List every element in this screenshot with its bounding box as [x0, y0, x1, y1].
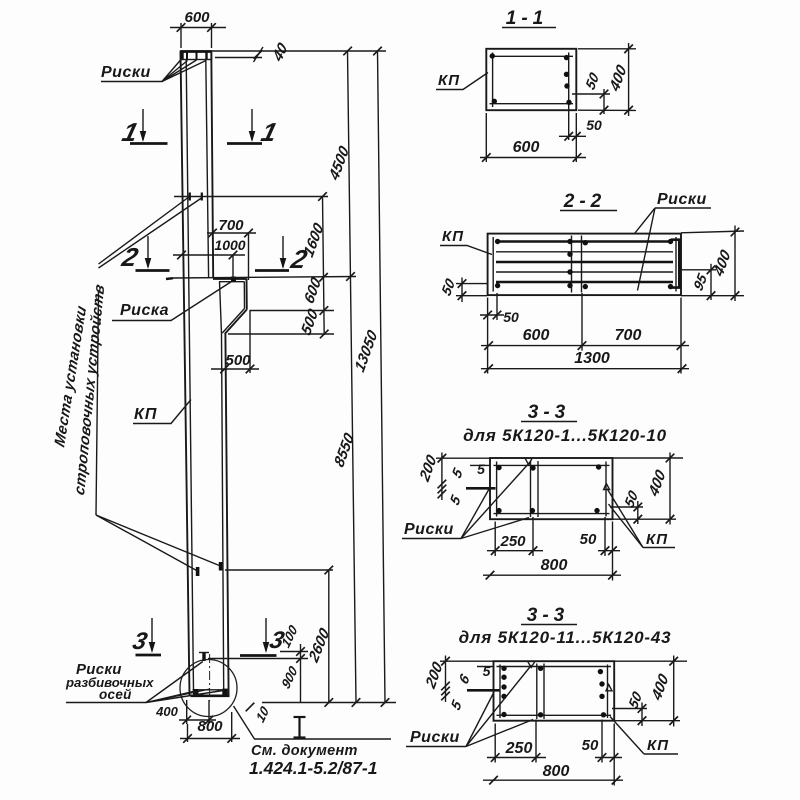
- svg-text:1300: 1300: [574, 350, 610, 367]
- svg-text:50: 50: [582, 737, 599, 754]
- svg-text:КП: КП: [134, 406, 157, 423]
- svg-text:для 5К120-11...5К120-43: для 5К120-11...5К120-43: [459, 628, 672, 647]
- svg-text:700: 700: [218, 217, 244, 234]
- svg-text:КП: КП: [442, 228, 464, 245]
- svg-text:3-3: 3-3: [527, 605, 569, 626]
- svg-text:800: 800: [543, 763, 570, 780]
- svg-text:КП: КП: [647, 737, 669, 754]
- svg-text:Риски: Риски: [404, 521, 454, 538]
- svg-text:50: 50: [586, 117, 602, 133]
- svg-text:Риски: Риски: [410, 729, 460, 746]
- svg-text:600: 600: [523, 327, 550, 344]
- svg-text:5: 5: [477, 461, 485, 477]
- svg-text:5: 5: [483, 663, 491, 679]
- svg-text:250: 250: [499, 533, 526, 550]
- svg-text:осей: осей: [99, 687, 132, 702]
- svg-text:2-2: 2-2: [563, 191, 606, 212]
- svg-text:1-1: 1-1: [506, 8, 548, 29]
- svg-text:Риски: Риски: [657, 191, 707, 208]
- svg-text:250: 250: [505, 740, 533, 757]
- svg-text:КП: КП: [438, 72, 460, 89]
- svg-text:600: 600: [184, 9, 210, 26]
- svg-text:600: 600: [513, 139, 540, 156]
- svg-text:КП: КП: [646, 531, 668, 548]
- svg-text:1.424.1-5.2/87-1: 1.424.1-5.2/87-1: [249, 758, 377, 778]
- svg-text:50: 50: [580, 531, 597, 548]
- svg-text:1000: 1000: [214, 237, 245, 253]
- svg-text:Риска: Риска: [120, 302, 169, 319]
- svg-text:Риски: Риски: [101, 64, 151, 81]
- svg-text:800: 800: [541, 557, 568, 574]
- svg-text:См. документ: См. документ: [251, 743, 358, 759]
- svg-text:500: 500: [225, 352, 251, 369]
- svg-text:для 5К120-1...5К120-10: для 5К120-1...5К120-10: [463, 426, 667, 445]
- svg-text:3-3: 3-3: [528, 402, 570, 423]
- svg-text:400: 400: [155, 704, 178, 719]
- svg-text:800: 800: [197, 718, 223, 735]
- svg-text:50: 50: [503, 309, 519, 325]
- svg-text:700: 700: [615, 327, 642, 344]
